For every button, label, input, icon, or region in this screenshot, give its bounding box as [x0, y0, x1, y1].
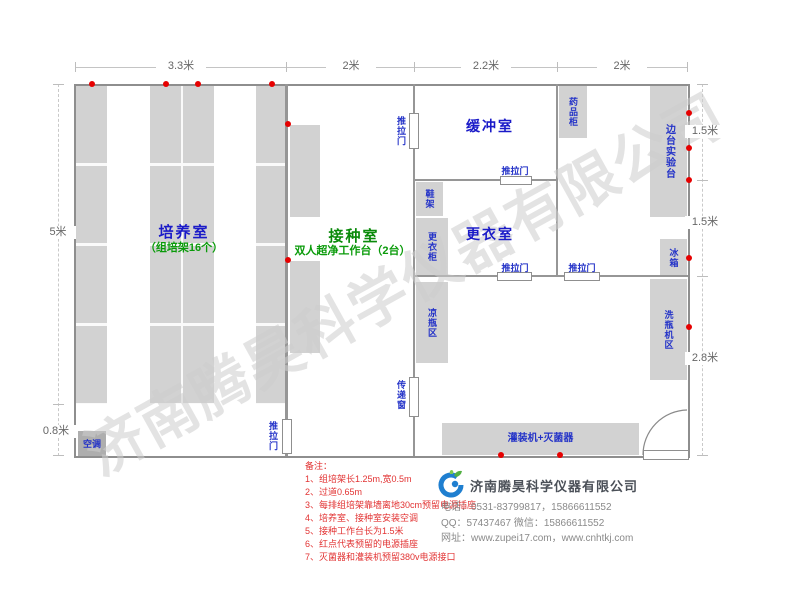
label-pass-window: 传递窗	[394, 372, 408, 418]
dim-tick	[697, 84, 708, 85]
room-label-buffer: 缓冲室	[435, 116, 545, 136]
power-socket-dot	[686, 177, 692, 183]
clean-bench	[290, 125, 320, 217]
label-wardrobe: 更衣柜	[416, 218, 448, 276]
label-side-bench: 边台实验台	[650, 86, 687, 217]
dim-tick	[697, 276, 708, 277]
wall-inoculation-east	[413, 415, 415, 456]
power-socket-dot	[285, 121, 291, 127]
dim-left-1: 5米	[40, 226, 76, 239]
company-logo-icon	[436, 470, 464, 498]
power-socket-dot	[686, 110, 692, 116]
wall-inoculation-east	[413, 147, 415, 377]
dim-top-3: 2.2米	[461, 60, 511, 73]
door-swing-arc	[640, 405, 690, 457]
power-socket-dot	[163, 81, 169, 87]
label-cooling-area: 凉瓶区	[416, 282, 448, 363]
label-sliding-door: 推拉门	[266, 416, 280, 456]
label-shoe-rack: 鞋架	[416, 182, 443, 216]
room-sublabel-inoculation: 双人超净工作台（2台）	[280, 242, 425, 258]
pass-window	[409, 377, 419, 417]
culture-rack-column	[76, 86, 107, 404]
company-website: 网址：www.zupei17.com，www.cnhtkj.com	[441, 529, 633, 544]
dim-right-1: 1.5米	[685, 125, 725, 138]
sliding-door	[409, 113, 419, 149]
label-sliding-door: 推拉门	[556, 262, 608, 273]
label-sliding-door: 推拉门	[489, 165, 541, 176]
label-medicine-cabinet: 药品柜	[559, 86, 587, 138]
wall-buffer-changing	[529, 179, 557, 181]
sliding-door	[564, 272, 600, 281]
company-name: 济南腾昊科学仪器有限公司	[470, 476, 638, 495]
room-label-changing: 更衣室	[435, 224, 545, 244]
power-socket-dot	[89, 81, 95, 87]
dim-tick	[414, 62, 415, 72]
power-socket-dot	[269, 81, 275, 87]
right-dimension-line	[702, 84, 703, 456]
power-socket-dot	[498, 452, 504, 458]
dim-tick	[53, 84, 64, 85]
floor-plan: 济南腾昊科学仪器有限公司 3.3米 2米 2.2米 2米 5米 0.8米 1.5…	[0, 0, 800, 600]
dim-top-4: 2米	[597, 60, 647, 73]
dim-tick	[697, 180, 708, 181]
dim-tick	[53, 455, 64, 456]
dim-tick	[75, 62, 76, 72]
label-sliding-door: 推拉门	[394, 110, 408, 152]
sliding-door	[282, 419, 292, 454]
label-air-conditioner: 空调	[78, 431, 106, 456]
label-washer-area: 洗瓶机区	[650, 279, 687, 380]
dim-left-2: 0.8米	[34, 425, 78, 438]
left-dimension-line	[58, 84, 59, 456]
dim-right-2: 1.5米	[685, 216, 725, 229]
dim-tick	[286, 62, 287, 72]
sliding-door	[497, 272, 532, 281]
label-filling-machine: 灌装机+灭菌器	[442, 423, 639, 455]
wall-changing-south	[531, 275, 565, 277]
dim-tick	[557, 62, 558, 72]
power-socket-dot	[557, 452, 563, 458]
dim-tick	[53, 404, 64, 405]
sliding-door	[500, 176, 532, 185]
wall-inoculation-east	[413, 84, 415, 113]
power-socket-dot	[285, 257, 291, 263]
power-socket-dot	[195, 81, 201, 87]
dim-tick	[687, 62, 688, 72]
power-socket-dot	[686, 255, 692, 261]
dim-top-1: 3.3米	[156, 60, 206, 73]
clean-bench	[290, 261, 320, 353]
dim-right-3: 2.8米	[685, 352, 725, 365]
note-item: 7、灭菌器和灌装机预留380v电源接口	[305, 551, 476, 564]
power-socket-dot	[686, 145, 692, 151]
label-sliding-door: 推拉门	[489, 262, 541, 273]
company-qq: QQ：57437467 微信：15866611552	[441, 514, 604, 529]
company-phone: 电话：0531-83799817，15866611552	[441, 498, 612, 513]
dim-tick	[697, 455, 708, 456]
power-socket-dot	[686, 324, 692, 330]
room-sublabel-cultivation: （组培架16个）	[114, 239, 254, 255]
dim-top-2: 2米	[326, 60, 376, 73]
wall-buffer-changing	[414, 179, 501, 181]
label-fridge: 冰箱	[660, 239, 687, 276]
